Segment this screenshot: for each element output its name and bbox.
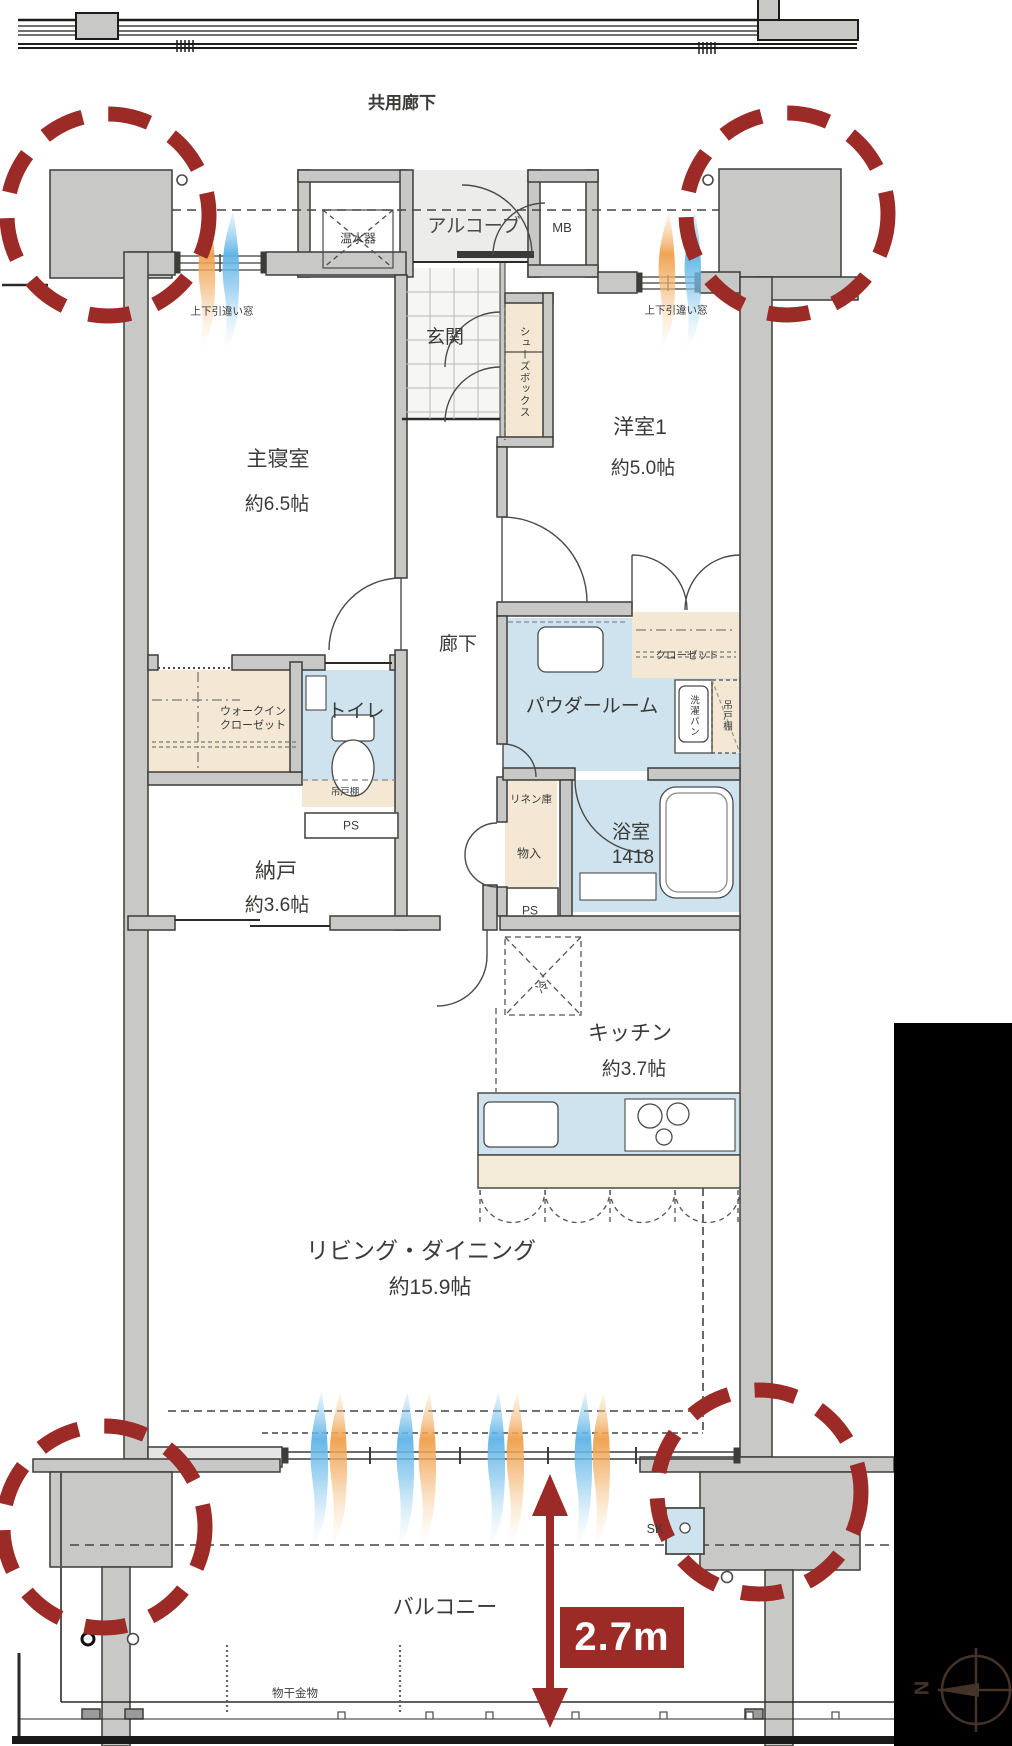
pipe-space-1-label: PS — [343, 819, 359, 834]
storage-in-label: 物入 — [517, 847, 541, 862]
neighbor-building-band — [18, 0, 858, 54]
closet-label: クローゼット — [656, 649, 719, 662]
master-bedroom-area: 約6.5帖 — [245, 493, 309, 517]
alcove-label: アルコーブ — [427, 215, 520, 239]
hanging-cupboard-toilet-label: 吊戸棚 — [331, 787, 360, 799]
washer-pan-label: 洗濯パン — [687, 695, 699, 737]
depth-arrow — [532, 1474, 568, 1728]
refrigerator-space — [505, 937, 581, 1015]
kitchen-area: 約3.7帖 — [602, 1058, 666, 1082]
bathroom-label: 浴室 — [612, 821, 650, 845]
meter-box-label: MB — [552, 220, 572, 236]
floor-plan: 共用廊下 主寝室 約6.5帖 洋室1 約5.0帖 納戸 約3.6帖 キッチン 約… — [0, 0, 1012, 1746]
left-outer-wall — [124, 252, 148, 1459]
western-room-door-swing — [502, 517, 587, 602]
western-room1-area: 約5.0帖 — [611, 457, 675, 481]
closet-door-swings — [632, 555, 740, 610]
common-corridor-label: 共用廊下 — [368, 92, 436, 113]
window-label-right: 上下引違い窓 — [645, 304, 708, 317]
water-heater-label: 温水器 — [340, 232, 376, 247]
column-bottom-left — [50, 1472, 172, 1567]
black-mask — [894, 1023, 1012, 1746]
storage-room-label: 納戸 — [255, 859, 297, 885]
laundry-hardware-label: 物干金物 — [272, 1687, 318, 1701]
bathroom-size: 1418 — [612, 846, 654, 870]
living-dining-label: リビング・ダイニング — [306, 1237, 536, 1266]
kitchen-hanging-cabinet — [480, 1190, 740, 1224]
western-room1-label: 洋室1 — [613, 415, 667, 441]
pipe-space-2-label: PS — [522, 904, 538, 919]
walk-in-closet-line2: クローゼット — [220, 719, 286, 733]
powder-room-label: パウダールーム — [526, 695, 658, 719]
storage-room-area: 約3.6帖 — [245, 894, 309, 918]
storage-in-door-swings — [465, 823, 497, 887]
window-top-left — [175, 252, 266, 273]
linen-cabinet-label: リネン庫 — [510, 793, 552, 806]
kitchen-sink — [484, 1102, 558, 1147]
walk-in-closet-label: ウォークイン クローゼット — [220, 705, 286, 733]
living-dining-area: 約15.9帖 — [389, 1275, 472, 1301]
shoes-box-label: シューズボックス — [517, 326, 530, 418]
hallway-label: 廊下 — [439, 633, 477, 657]
living-door-swing — [437, 930, 487, 1006]
slop-sink-label: SK — [647, 1522, 664, 1538]
hanging-cupboard-powder-label: 吊戸棚 — [720, 700, 732, 732]
floor-plan-drawing — [0, 0, 1012, 1746]
right-outer-wall — [740, 277, 772, 1457]
kitchen-counter — [478, 1093, 740, 1188]
window-label-left: 上下引違い窓 — [191, 305, 254, 318]
toilet-label: トイレ — [327, 700, 384, 724]
balcony-posts — [338, 1712, 839, 1719]
bedroom-door-swing — [329, 578, 401, 650]
walk-in-closet-line1: ウォークイン — [220, 705, 286, 719]
kitchen-label: キッチン — [588, 1021, 672, 1047]
compass-north-label: N — [912, 1681, 935, 1695]
master-bedroom-label: 主寝室 — [247, 447, 310, 473]
column-top-right — [719, 169, 841, 277]
balcony-label: バルコニー — [393, 1595, 498, 1621]
balcony-depth-badge: 2.7m — [560, 1607, 684, 1668]
entrance-label: 玄関 — [426, 326, 464, 350]
